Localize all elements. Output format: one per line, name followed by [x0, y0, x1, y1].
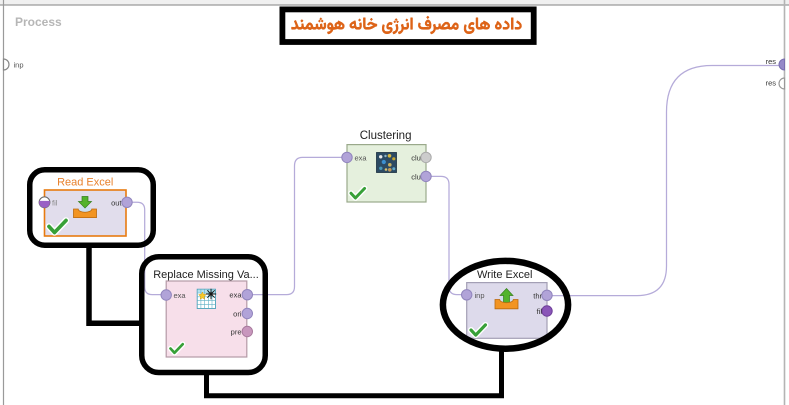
svg-text:ori: ori [233, 310, 242, 319]
svg-text:res: res [766, 57, 777, 66]
svg-text:exa: exa [355, 153, 368, 162]
svg-text:Read Excel: Read Excel [57, 177, 113, 189]
svg-text:clu: clu [411, 172, 421, 181]
svg-text:pre: pre [231, 328, 242, 337]
svg-text:inp: inp [14, 61, 24, 70]
svg-text:Clustering: Clustering [360, 130, 412, 142]
svg-text:clu: clu [411, 153, 421, 162]
svg-text:fil: fil [52, 198, 58, 207]
svg-text:res: res [766, 79, 777, 88]
svg-text:Replace Missing Va...: Replace Missing Va... [153, 269, 259, 281]
svg-text:fil: fil [537, 307, 543, 316]
svg-text:Write Excel: Write Excel [477, 269, 532, 281]
svg-text:out: out [111, 198, 122, 207]
svg-text:Process: Process [15, 15, 62, 29]
svg-text:thr: thr [533, 291, 542, 300]
svg-text:exa: exa [174, 291, 187, 300]
svg-text:inp: inp [475, 291, 485, 300]
svg-text:exa: exa [229, 291, 242, 300]
